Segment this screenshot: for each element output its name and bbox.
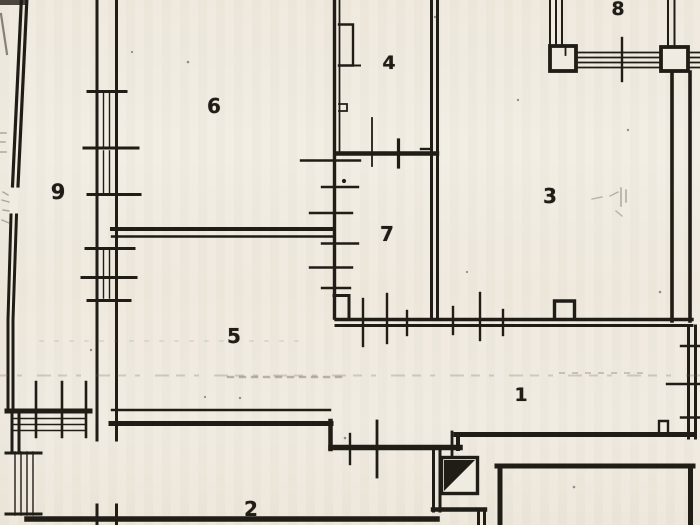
window-icon [577,53,660,68]
window-icon [15,452,33,515]
balcony-room-8 [550,0,700,81]
wall-5-bottom [111,410,331,449]
room-label-5: 5 [227,324,241,348]
room-label-6: 6 [207,94,221,118]
room-label-3: 3 [543,184,557,208]
room-label-8: 8 [611,0,624,20]
window-icon [14,419,86,431]
wall-bottom-left [6,382,437,519]
bottom-right-room [497,466,693,525]
wall-2-1 [331,421,694,477]
shaft-triangle-icon [442,458,478,494]
wall-1-top [336,293,692,346]
room-label-4: 4 [382,52,395,74]
room-label-7: 7 [380,222,394,246]
wall-room-7-ticks [301,161,360,319]
paper-smudges [0,3,700,489]
floor-plan-drawing [0,0,700,525]
wall-6-5 [112,229,334,237]
wall-9-6 [82,0,140,525]
floor-plan: 1 2 3 4 5 6 7 8 9 [0,0,700,525]
room-label-9: 9 [51,180,66,204]
wall-diagonal-left [8,0,27,412]
room-label-2: 2 [244,497,258,521]
room-label-1: 1 [514,384,527,406]
wall-3-right [667,72,700,438]
